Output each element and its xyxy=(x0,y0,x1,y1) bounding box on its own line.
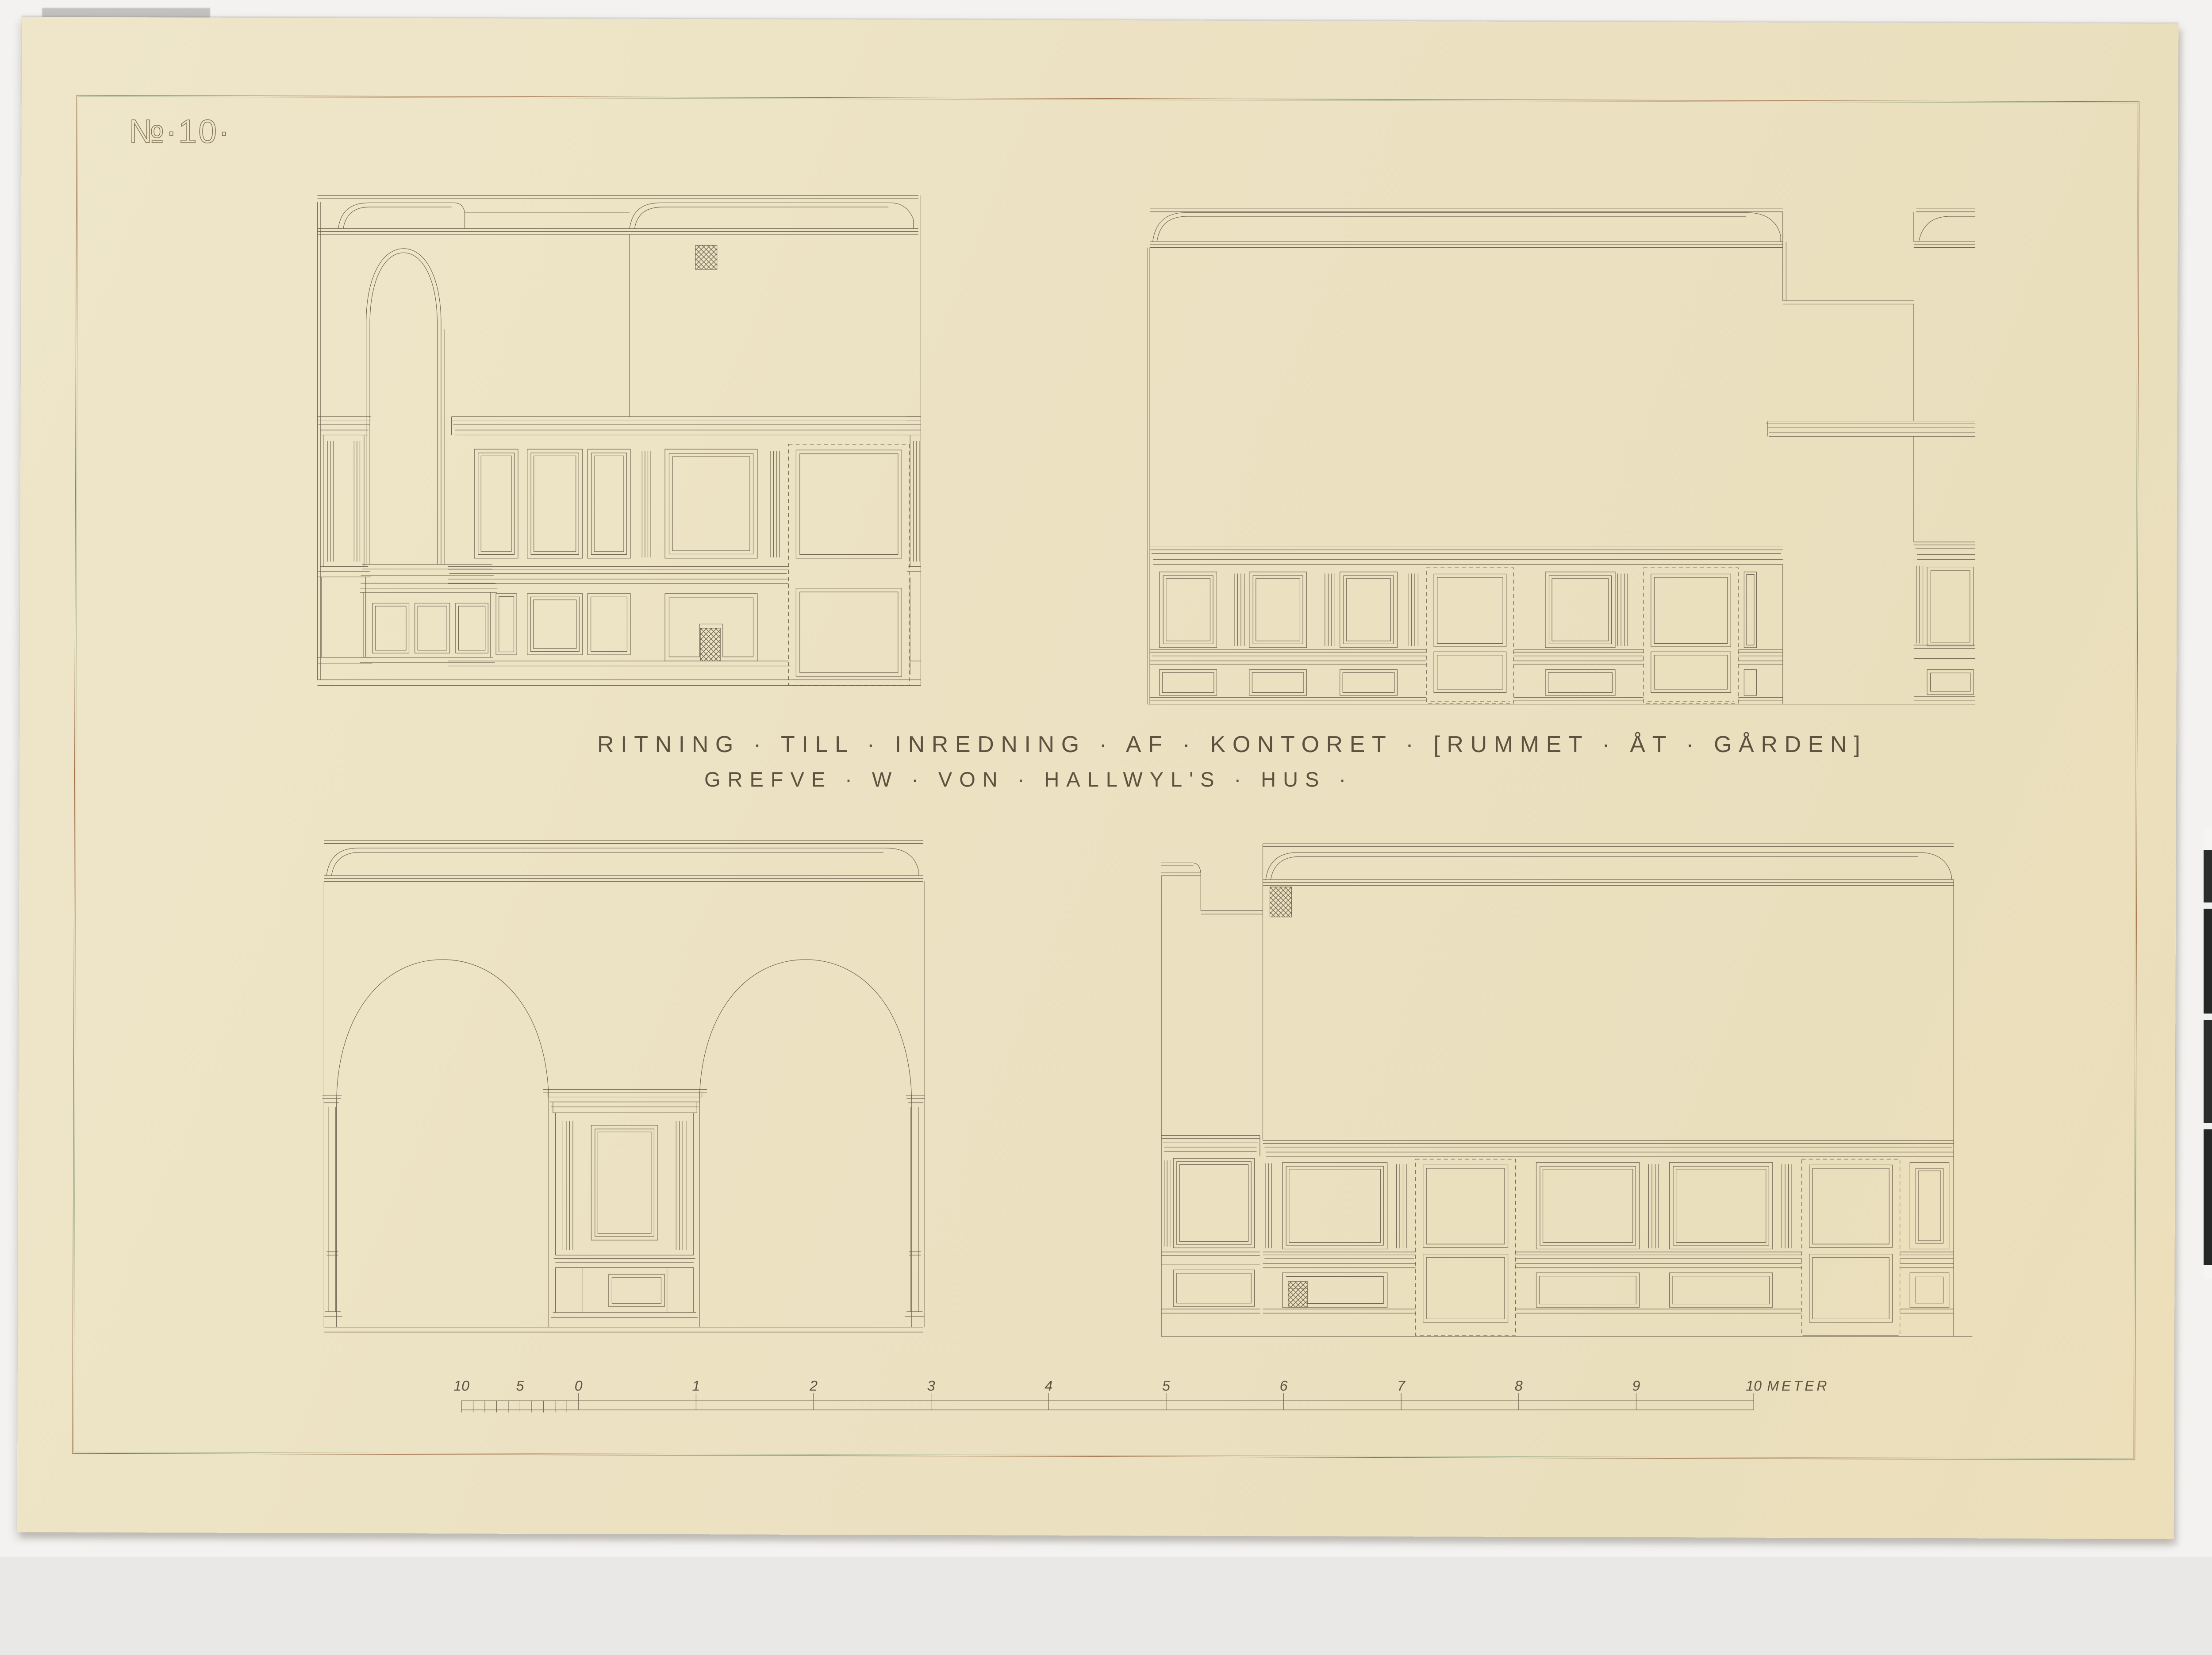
elevation-bottom-left xyxy=(320,834,928,1337)
scale-bar: 10 5 0 1 2 3 4 5 6 7 8 9 10 METER xyxy=(460,1379,1840,1422)
photo-scale-strip xyxy=(2204,829,2212,1279)
wainscot-tall-panels xyxy=(1266,1162,1949,1249)
lattice-vent xyxy=(1270,887,1291,917)
elevation-top-right xyxy=(1144,189,1975,707)
left-pilaster xyxy=(318,202,373,680)
wainscot-tall-panels xyxy=(474,449,780,558)
cornice xyxy=(1150,209,1783,247)
wall-recess-step xyxy=(1766,209,1975,542)
wainscot-lower-panels xyxy=(360,592,757,662)
scale-tick-label: 4 xyxy=(1045,1378,1052,1394)
arch-left xyxy=(336,960,549,1327)
scale-tick-label: 7 xyxy=(1397,1378,1406,1394)
arched-niche xyxy=(360,249,497,592)
scale-tick-label: 2 xyxy=(809,1378,818,1394)
cornice xyxy=(1263,844,1954,1336)
scale-tick-label: 3 xyxy=(927,1378,935,1394)
scale-tick-label: 9 xyxy=(1632,1378,1640,1394)
base-and-floor xyxy=(318,661,921,686)
cornice xyxy=(318,195,918,234)
elevation-top-left xyxy=(314,192,922,689)
base-and-floor xyxy=(1148,698,1975,704)
right-section-panels xyxy=(1914,566,1975,701)
scale-tick-label: 10 xyxy=(453,1378,469,1394)
dashed-door-opening xyxy=(788,444,909,686)
scale-tick-label: 10 xyxy=(1746,1378,1762,1394)
dashed-door-opening-2 xyxy=(1644,568,1738,703)
dashed-door-opening-1 xyxy=(1416,1159,1516,1336)
mid-rail xyxy=(448,566,788,584)
mid-rail xyxy=(1150,564,1783,704)
title-line-1: RITNING · TILL · INREDNING · AF · KONTOR… xyxy=(597,731,1460,758)
sheet-number-label: №·10· xyxy=(129,113,231,150)
floor-lines xyxy=(324,1327,923,1332)
scale-tick-label: 6 xyxy=(1280,1378,1288,1394)
scale-unit-label: METER xyxy=(1767,1378,1829,1394)
mid-rail xyxy=(1263,1252,1954,1268)
title-line-2: GREFVE · W · VON · HALLWYL'S · HUS · xyxy=(597,767,1460,791)
right-edge-pilaster xyxy=(905,881,925,1327)
elevation-bottom-right xyxy=(1161,838,1975,1347)
scale-tick-label: 1 xyxy=(692,1378,700,1394)
scale-tick-label: 0 xyxy=(575,1378,583,1394)
dashed-door-opening-1 xyxy=(1426,568,1513,703)
left-fragment xyxy=(1161,863,1263,1336)
central-pier xyxy=(543,1089,707,1317)
scale-tick-label: 5 xyxy=(516,1378,524,1394)
scale-bar-lines xyxy=(461,1393,1754,1412)
base-and-floor xyxy=(1161,1309,1972,1336)
arch-right xyxy=(699,960,911,1327)
dashed-door-opening-2 xyxy=(1802,1159,1900,1336)
wainscot-cap xyxy=(1148,248,1975,704)
sheet-number: №·10· xyxy=(127,111,248,156)
scale-tick-labels: 10 5 0 1 2 3 4 5 6 7 8 9 10 METER xyxy=(453,1378,1829,1394)
scanned-sheet-photo: №·10· xyxy=(0,0,2212,1557)
wainscot-cap xyxy=(1260,1140,1954,1156)
wainscot-tall-panels xyxy=(1160,572,1757,648)
chair-rail xyxy=(451,234,921,435)
cornice xyxy=(324,841,923,881)
scale-tick-label: 5 xyxy=(1162,1378,1170,1394)
lattice-vent xyxy=(695,245,717,269)
right-pilaster xyxy=(907,195,921,685)
wainscot-lower-panels xyxy=(1160,670,1757,695)
scale-tick-label: 8 xyxy=(1515,1378,1523,1394)
wainscot-lower-panels xyxy=(1283,1273,1949,1307)
left-edge-pilaster xyxy=(322,881,342,1327)
